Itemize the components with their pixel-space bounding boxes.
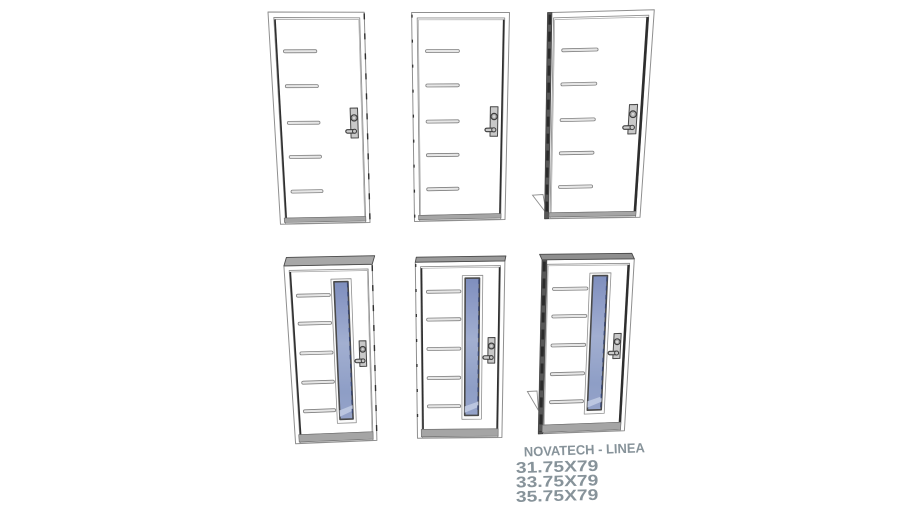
svg-text:35.75X79: 35.75X79 (516, 487, 599, 506)
